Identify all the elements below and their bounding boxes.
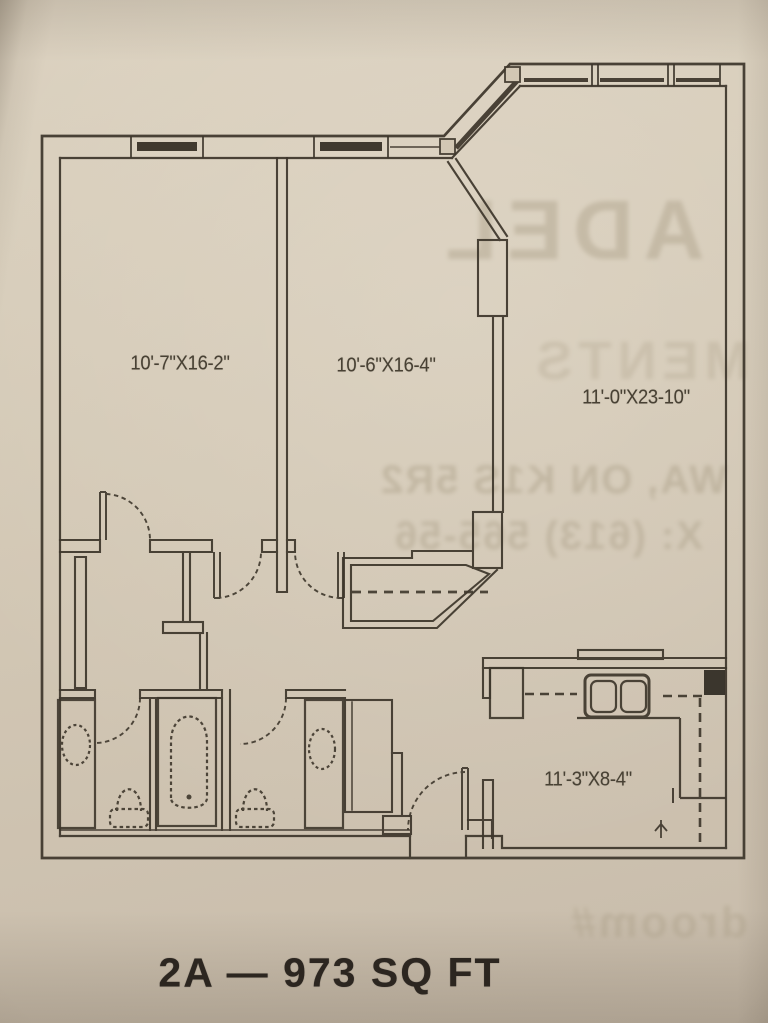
bathroom-fixtures — [58, 698, 343, 828]
kitchen-sink — [585, 675, 649, 717]
toilet-2 — [236, 789, 274, 827]
living-room-dimensions-label: 11'-0"X23-10" — [582, 387, 690, 410]
windows — [131, 64, 720, 158]
toilet-1 — [110, 789, 148, 827]
sink-1 — [62, 725, 90, 765]
interior-walls — [60, 158, 726, 848]
unit-title: 2A — 973 SQ FT — [158, 950, 501, 997]
floor-plan-drawing — [0, 0, 768, 1023]
kitchen-fixtures — [490, 668, 726, 848]
kitchen-dimensions-label: 11'-3"X8-4" — [544, 769, 632, 792]
light-symbol — [655, 820, 667, 838]
duct-chase — [704, 670, 725, 695]
bathtub — [158, 698, 216, 826]
bedroom-2-dimensions-label: 10'-6"X16-4" — [336, 355, 435, 378]
door-swings — [95, 492, 488, 830]
sink-2 — [309, 729, 335, 769]
floor-plan-photo: ADEL MENTS WA, ON K1S 5R2 X: (613) 565-5… — [0, 0, 768, 1023]
fridge — [490, 668, 523, 718]
bedroom-1-dimensions-label: 10'-7"X16-2" — [130, 353, 229, 376]
